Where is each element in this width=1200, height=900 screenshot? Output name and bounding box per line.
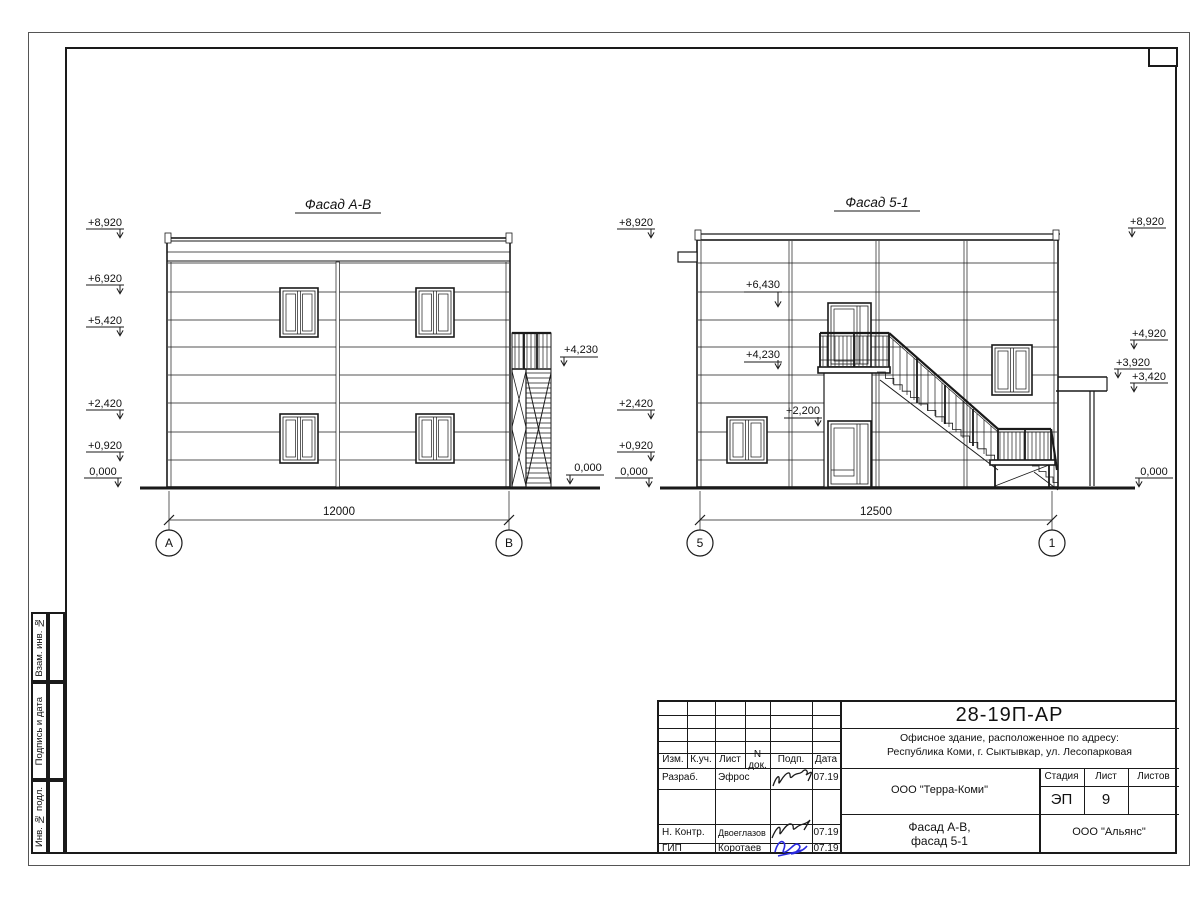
wall-bracket bbox=[678, 252, 697, 262]
client-company: ООО "Терра-Коми" bbox=[840, 768, 1039, 814]
col-header-list: Лист bbox=[715, 753, 745, 768]
elevation-mark: +4,230 bbox=[564, 344, 598, 356]
window bbox=[280, 414, 318, 463]
elevation-mark: +8,920 bbox=[619, 217, 653, 229]
col-header-data: Дата bbox=[812, 753, 840, 768]
document-number: 28-19П-АР bbox=[840, 702, 1179, 728]
lower-door bbox=[828, 421, 871, 487]
stamp-cell-empty bbox=[48, 780, 65, 854]
upper-door bbox=[828, 303, 871, 367]
stamp-label: Инв. № подл. bbox=[34, 787, 45, 847]
facade-51-drawing: Фасад 5-1 bbox=[615, 195, 1173, 556]
elevation-mark: +8,920 bbox=[88, 217, 122, 229]
col-header-kuch: К.уч. bbox=[687, 753, 715, 768]
elevation-mark: +3,420 bbox=[1132, 371, 1166, 383]
elevation-mark: +4,230 bbox=[746, 349, 780, 361]
stamp-cell-vzam: Взам. инв. № bbox=[31, 612, 48, 682]
dimension-51: 12500 5 1 bbox=[687, 491, 1065, 556]
window bbox=[416, 414, 454, 463]
window bbox=[416, 288, 454, 337]
elevation-marks-ab-left: +8,920 +6,920 +5,420 +2,420 +0,920 0,000 bbox=[84, 217, 124, 487]
row-date: 07.19 bbox=[812, 843, 840, 856]
elevation-mark: 0,000 bbox=[620, 466, 648, 478]
stamp-cell-inv: Инв. № подл. bbox=[31, 780, 48, 854]
facade-51-title: Фасад 5-1 bbox=[845, 195, 908, 210]
axis-label: А bbox=[165, 536, 173, 550]
dimension-ab: 12000 А В bbox=[156, 491, 522, 556]
window bbox=[992, 345, 1032, 395]
elevation-mark: +2,200 bbox=[786, 405, 820, 417]
elevation-mark: +3,920 bbox=[1116, 357, 1150, 369]
sheets-count bbox=[1128, 786, 1179, 814]
row-name: Коротаев bbox=[715, 843, 770, 856]
sheet-label: Лист bbox=[1084, 768, 1128, 786]
col-header-ndok: N док. bbox=[745, 753, 770, 768]
title-block: Изм. К.уч. Лист N док. Подп. Дата Разраб… bbox=[657, 700, 1177, 854]
col-header-izm: Изм. bbox=[659, 753, 687, 768]
row-role: Н. Контр. bbox=[659, 824, 715, 843]
col-header-podp: Подп. bbox=[770, 753, 812, 768]
elevation-mark: +6,430 bbox=[746, 279, 780, 291]
sheets-label: Листов bbox=[1128, 768, 1179, 786]
canopy bbox=[1056, 377, 1107, 486]
dimension-value: 12500 bbox=[860, 506, 892, 518]
sheet-title-line2: фасад 5-1 bbox=[840, 832, 1039, 850]
row-role: Разраб. bbox=[659, 768, 715, 789]
row-role: ГИП bbox=[659, 843, 715, 856]
axis-label: 5 bbox=[697, 536, 704, 550]
row-name: Эфрос bbox=[715, 768, 770, 789]
row-date: 07.19 bbox=[812, 824, 840, 843]
contractor-company: ООО "Альянс" bbox=[1039, 814, 1179, 852]
window bbox=[727, 417, 767, 463]
stamp-cell-podpis: Подпись и дата bbox=[31, 682, 48, 780]
stage-value: ЭП bbox=[1039, 786, 1084, 814]
row-date: 07.19 bbox=[812, 768, 840, 789]
project-address-line2: Республика Коми, г. Сыктывкар, ул. Лесоп… bbox=[840, 744, 1179, 761]
stamp-cell-empty bbox=[48, 682, 65, 780]
stamp-label: Подпись и дата bbox=[34, 697, 45, 765]
elevation-mark: 0,000 bbox=[89, 466, 117, 478]
elevation-mark: +8,920 bbox=[1130, 216, 1164, 228]
elevation-marks-51-right: +8,920 +4,920 +3,920 +3,420 0,000 bbox=[1114, 216, 1173, 487]
stair-tower bbox=[512, 333, 551, 487]
elevation-marks-ab-right: +4,230 0,000 bbox=[560, 344, 604, 484]
elevation-mark: +2,420 bbox=[88, 398, 122, 410]
facade-ab-drawing: Фасад А-В bbox=[84, 197, 604, 556]
row-name: Двоеглазов bbox=[715, 824, 770, 843]
elevation-mark: +4,920 bbox=[1132, 328, 1166, 340]
facade-ab-title: Фасад А-В bbox=[305, 197, 371, 212]
elevation-mark: +0,920 bbox=[619, 440, 653, 452]
dimension-value: 12000 bbox=[323, 506, 355, 518]
elevation-marks-51-left: +8,920 +2,420 +0,920 0,000 bbox=[615, 217, 655, 487]
elevation-mark: +6,920 bbox=[88, 273, 122, 285]
stamp-cell-empty bbox=[48, 612, 65, 682]
elevation-mark: 0,000 bbox=[574, 462, 602, 474]
elevation-mark: +5,420 bbox=[88, 315, 122, 327]
elevation-mark: 0,000 bbox=[1140, 466, 1168, 478]
axis-label: 1 bbox=[1049, 536, 1056, 550]
drawing-sheet: Фасад А-В bbox=[0, 0, 1200, 900]
stage-label: Стадия bbox=[1039, 768, 1084, 786]
window bbox=[280, 288, 318, 337]
stamp-label: Взам. инв. № bbox=[34, 617, 45, 677]
elevation-mark: +2,420 bbox=[619, 398, 653, 410]
sheet-number: 9 bbox=[1084, 786, 1128, 814]
elevation-mark: +0,920 bbox=[88, 440, 122, 452]
axis-label: В bbox=[505, 536, 513, 550]
